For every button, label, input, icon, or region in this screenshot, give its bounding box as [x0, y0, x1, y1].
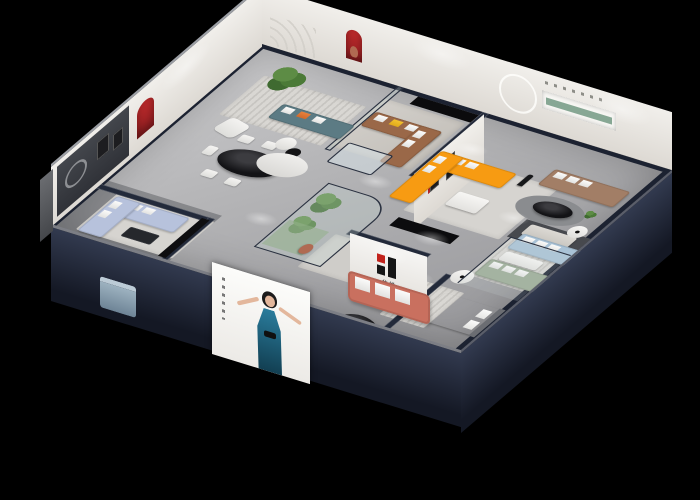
dining-chair-4 — [223, 177, 242, 187]
showroom-render: 华悦 — [0, 0, 700, 500]
dining-chair-1 — [236, 134, 255, 144]
west-coffee-table — [120, 227, 160, 245]
wall-light-glow-2 — [412, 32, 472, 76]
dining-chair-5 — [201, 145, 220, 156]
ring-light — [499, 69, 537, 119]
orange-coffee-table — [444, 191, 490, 214]
poster-woman-arm-left — [236, 297, 259, 306]
red-arch-niche-1 — [137, 93, 154, 140]
black-vase-2 — [574, 230, 581, 234]
teal-sofa — [267, 104, 355, 140]
poster-woman-dress — [256, 306, 282, 376]
teddy-bear-figurine — [350, 45, 358, 58]
wall-light-glow — [161, 32, 211, 101]
east-plant — [580, 209, 600, 220]
logo-right-bar — [388, 257, 396, 279]
poster-text-column — [222, 277, 225, 320]
round-wall-art — [65, 153, 87, 194]
wall-frame-2 — [113, 127, 123, 152]
light-pool-3 — [493, 208, 535, 228]
light-pool-1 — [353, 171, 398, 192]
potted-tree — [255, 62, 318, 96]
dining-chair-3 — [199, 169, 218, 179]
figure-sculpture — [517, 174, 535, 186]
logo-red-square — [377, 253, 385, 263]
west-corner-cut — [40, 169, 53, 242]
poster-woman-arm-right — [278, 306, 302, 325]
logo-left-bar — [377, 264, 385, 275]
wall-frame-1 — [97, 132, 109, 160]
glass-display-table — [326, 142, 394, 175]
red-arch-niche-2 — [346, 28, 362, 63]
east-black-table — [527, 198, 579, 222]
